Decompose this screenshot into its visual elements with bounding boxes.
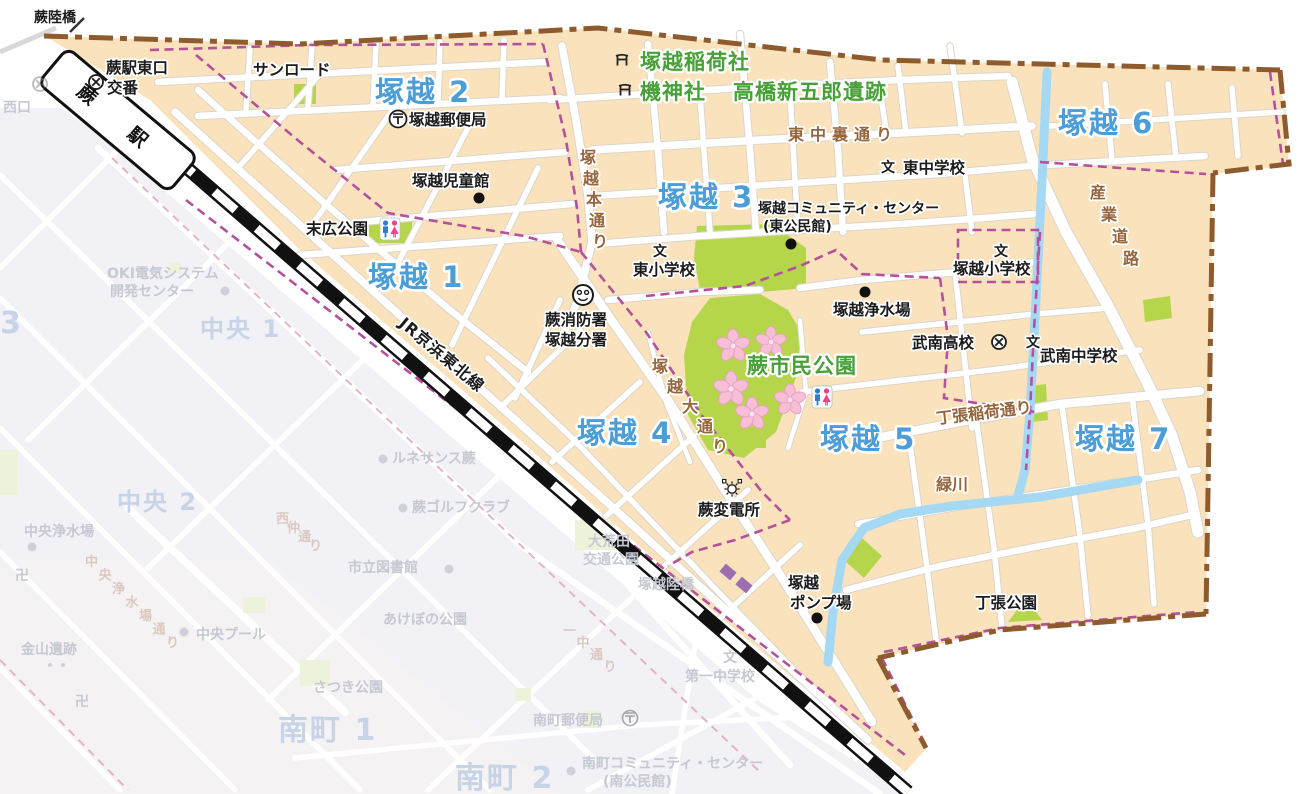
label-shimin-koen: 蕨市民公園 bbox=[747, 354, 857, 378]
label-chohari-park: 丁張公園 bbox=[975, 594, 1037, 612]
map-canvas: 蕨 駅 〒 〒 bbox=[0, 0, 1300, 794]
label-suehiro-park: 末広公園 bbox=[306, 219, 368, 238]
label-minami-cc-2: (南公民館) bbox=[603, 773, 672, 790]
label-oki-1: OKI電気システム bbox=[107, 265, 219, 282]
label-minami-cc-1: 南町コミュニティ・センター bbox=[582, 755, 763, 772]
label-higashi-chu: 東中学校 bbox=[903, 158, 966, 177]
label-sunroad: サンロード bbox=[253, 61, 331, 79]
label-area-chuo-1: 中央 1 bbox=[200, 315, 281, 343]
label-area-chuo-2: 中央 2 bbox=[117, 488, 198, 516]
police-icon-faded bbox=[33, 77, 47, 91]
label-josuijo: 塚越浄水場 bbox=[833, 300, 911, 319]
label-golf-club: 蕨ゴルフクラブ bbox=[412, 499, 510, 516]
label-hata-jinja: 機神社 bbox=[640, 80, 706, 104]
label-area-tsukagoshi-6: 塚越 6 bbox=[1058, 106, 1154, 140]
label-area-tsukagoshi-7: 塚越 7 bbox=[1075, 422, 1171, 456]
label-takahashi-iseki: 高橋新五郎遺跡 bbox=[733, 80, 887, 104]
highschool-icon bbox=[992, 335, 1006, 349]
label-area-tsukagoshi-5: 塚越 5 bbox=[820, 422, 916, 456]
label-renaissance: ルネサンス蕨 bbox=[392, 450, 476, 467]
toilet-icon bbox=[380, 218, 400, 240]
label-daiichi-chu: 第一中学校 bbox=[685, 668, 756, 685]
label-bunan-koko: 武南高校 bbox=[912, 333, 975, 352]
school-icon-tsukagoshi-sho: 文 bbox=[994, 243, 1009, 260]
label-area-chuo-3-part: 3 bbox=[0, 306, 23, 341]
temple-icon-2: 卍 bbox=[75, 694, 89, 710]
label-area-tsukagoshi-3: 塚越 3 bbox=[658, 180, 754, 214]
poi-dot bbox=[860, 287, 871, 298]
label-community-center-2: (東公民館) bbox=[763, 218, 832, 235]
school-icon-higashi-sho: 文 bbox=[653, 243, 668, 260]
label-koban-2: 交番 bbox=[107, 78, 139, 97]
label-area-tsukagoshi-1: 塚越 1 bbox=[368, 260, 464, 294]
post-glyph: 〒 bbox=[623, 711, 637, 727]
label-inari-sha: 塚越稲荷社 bbox=[640, 50, 750, 74]
toilet-icon bbox=[812, 386, 832, 408]
label-satsuki-koen: さつき公園 bbox=[313, 680, 383, 696]
label-bunan-chu: 武南中学校 bbox=[1040, 346, 1118, 365]
label-area-tsukagoshi-4: 塚越 4 bbox=[577, 416, 673, 450]
label-pump-2: ポンプ場 bbox=[790, 593, 852, 612]
label-fire-2: 塚越分署 bbox=[545, 330, 607, 349]
label-post-office: 塚越郵便局 bbox=[409, 110, 487, 129]
label-jidokan: 塚越児童館 bbox=[412, 171, 490, 190]
post-office-icon: 〒 bbox=[390, 111, 407, 129]
label-pump-1: 塚越 bbox=[788, 573, 820, 592]
label-fire-1: 蕨消防署 bbox=[545, 310, 607, 329]
poi-dot bbox=[474, 193, 485, 204]
label-toshokan: 市立図書館 bbox=[348, 559, 418, 576]
label-higashi-sho: 東小学校 bbox=[633, 260, 696, 279]
label-akebono-koen: あけぼの公園 bbox=[383, 612, 467, 628]
label-minami-post: 南町郵便局 bbox=[533, 712, 603, 729]
post-glyph: 〒 bbox=[391, 112, 405, 128]
label-chuo-pool: 中央プール bbox=[196, 626, 266, 643]
label-warabi-rikkyo: 蕨陸橋 bbox=[34, 9, 77, 26]
label-midorikawa: 緑川 bbox=[936, 475, 968, 494]
label-tsukagoshi-sho: 塚越小学校 bbox=[953, 259, 1031, 278]
label-area-minami-1: 南町 1 bbox=[278, 713, 377, 748]
label-area-tsukagoshi-2: 塚越 2 bbox=[375, 75, 471, 109]
label-higashinaka-ura-dori: 東中裏通り bbox=[788, 125, 898, 144]
label-hendensho: 蕨変電所 bbox=[698, 500, 761, 519]
label-community-center: 塚越コミュニティ・センター bbox=[758, 200, 939, 217]
temple-icon: 卍 bbox=[15, 568, 29, 584]
post-office-icon-faded: 〒 bbox=[623, 711, 638, 728]
label-kanayama-iseki: 金山遺跡 bbox=[20, 641, 77, 658]
poi-dot bbox=[812, 613, 823, 624]
label-koban-1: 蕨駅東口 bbox=[106, 58, 168, 77]
fire-station-icon bbox=[573, 285, 593, 305]
label-oarata-1: 大荒田 bbox=[588, 533, 630, 550]
label-oki-2: 開発センター bbox=[110, 283, 194, 300]
school-icon-bunan-chu: 文 bbox=[1026, 334, 1041, 351]
label-chuo-josuijo: 中央浄水場 bbox=[24, 523, 94, 540]
poi-dot bbox=[786, 239, 797, 250]
label-oarata-2: 交通公園 bbox=[583, 551, 639, 568]
label-area-minami-2: 南町 2 bbox=[455, 761, 554, 794]
school-icon-higashi-chu: 文 bbox=[881, 159, 896, 176]
police-icon bbox=[89, 75, 103, 89]
label-nishiguchi: 西口 bbox=[3, 100, 31, 116]
label-tsukagoshi-rikkyo-faded: 塚越陸橋 bbox=[638, 576, 695, 593]
school-icon-daiichi-chu-faded: 文 bbox=[723, 649, 738, 666]
